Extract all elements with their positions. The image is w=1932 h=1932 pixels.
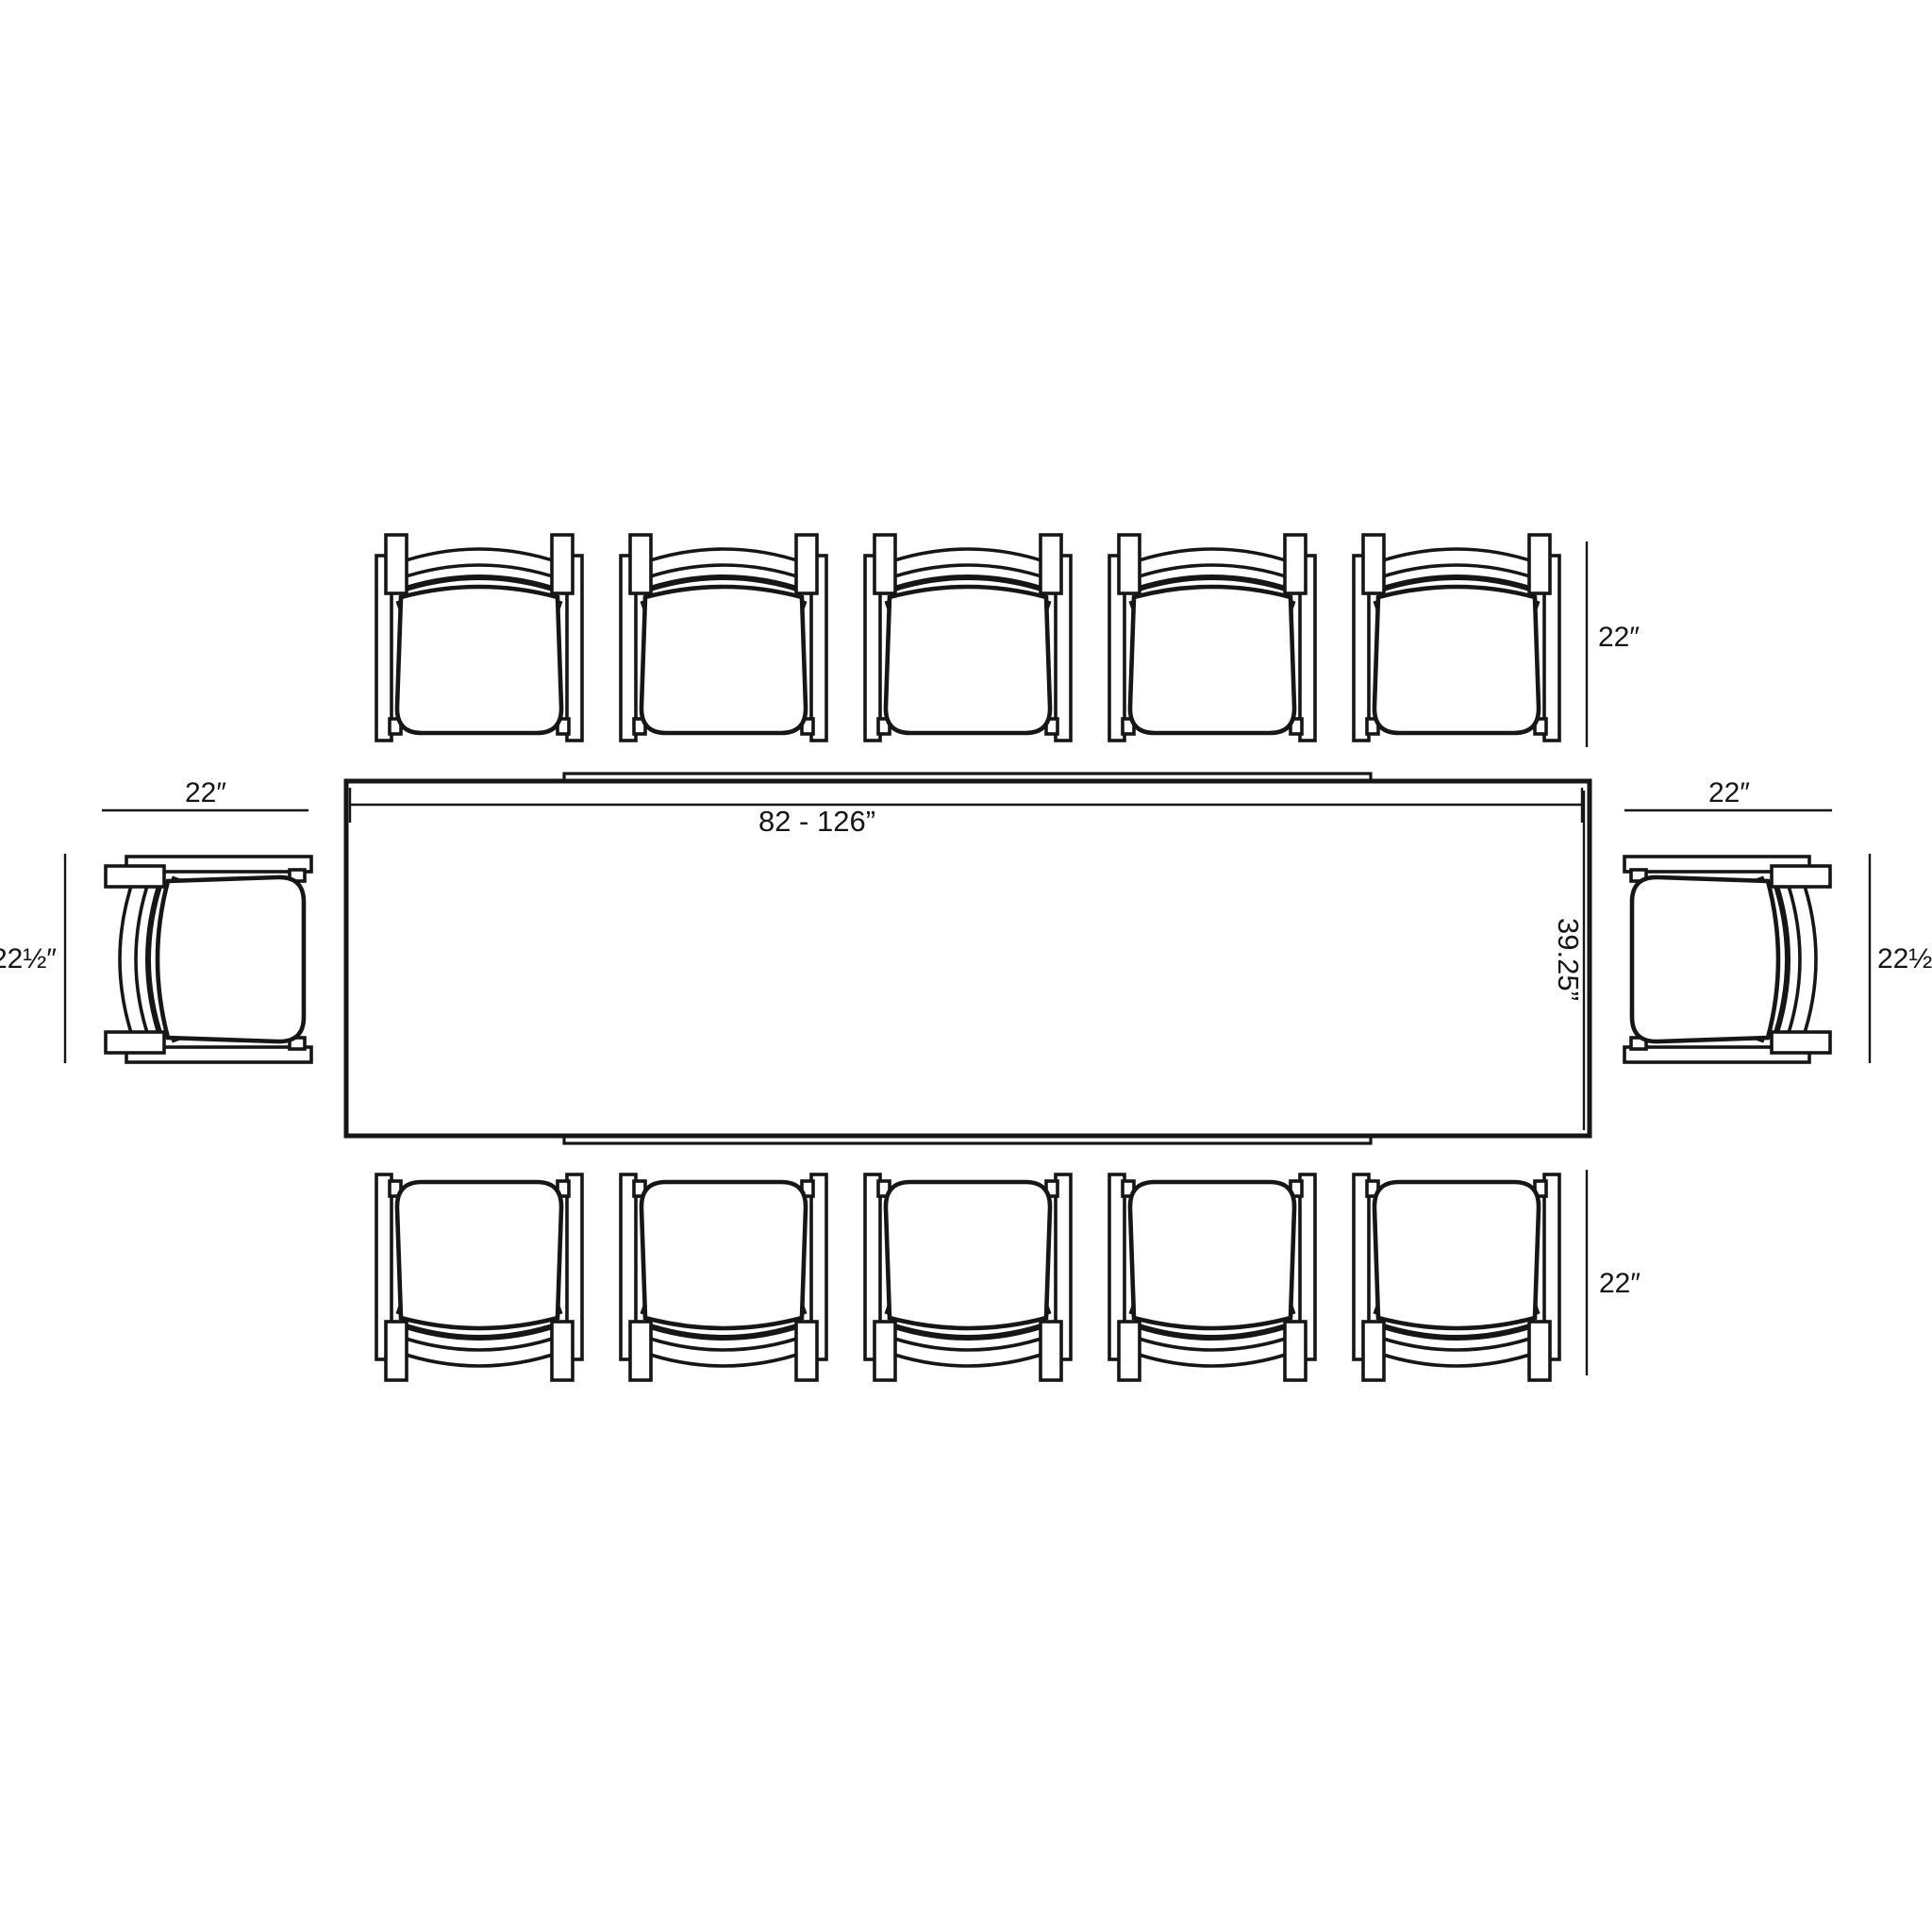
dim-label-left-end-top: 22″: [185, 777, 226, 808]
chair-top-3: [865, 535, 1071, 741]
chair-row-top: [376, 535, 1559, 741]
dining-table: [346, 774, 1590, 1143]
furniture-plan-page: 82 - 126” 39.25” 22″ 22″ 22″ 22½″ 22″ 22…: [0, 0, 1932, 1932]
chair-bottom-5: [1354, 1174, 1559, 1380]
chair-top-2: [621, 535, 826, 741]
table-top: [346, 781, 1590, 1136]
dim-label-right-end-top: 22″: [1708, 777, 1750, 808]
dim-label-table-width: 39.25”: [1552, 918, 1585, 1001]
dim-label-top-row-depth: 22″: [1598, 622, 1640, 653]
chair-top-1: [376, 535, 582, 741]
chair-bottom-4: [1109, 1174, 1315, 1380]
chair-bottom-3: [865, 1174, 1071, 1380]
chair-top-4: [1109, 535, 1315, 741]
chair-bottom-2: [621, 1174, 826, 1380]
dim-label-bottom-row-depth: 22″: [1599, 1268, 1641, 1299]
chair-bottom-1: [376, 1174, 582, 1380]
chair-row-bottom: [376, 1174, 1559, 1380]
chair-top-5: [1354, 535, 1559, 741]
chair-left-end: [106, 857, 311, 1062]
dim-label-left-end-side: 22½″: [0, 943, 57, 974]
dim-label-right-end-side: 22½″: [1877, 943, 1932, 974]
chair-right-end: [1624, 857, 1830, 1062]
floor-plan-canvas: 82 - 126” 39.25” 22″ 22″ 22″ 22½″ 22″ 22…: [0, 0, 1932, 1932]
dim-label-table-length: 82 - 126”: [758, 805, 875, 838]
